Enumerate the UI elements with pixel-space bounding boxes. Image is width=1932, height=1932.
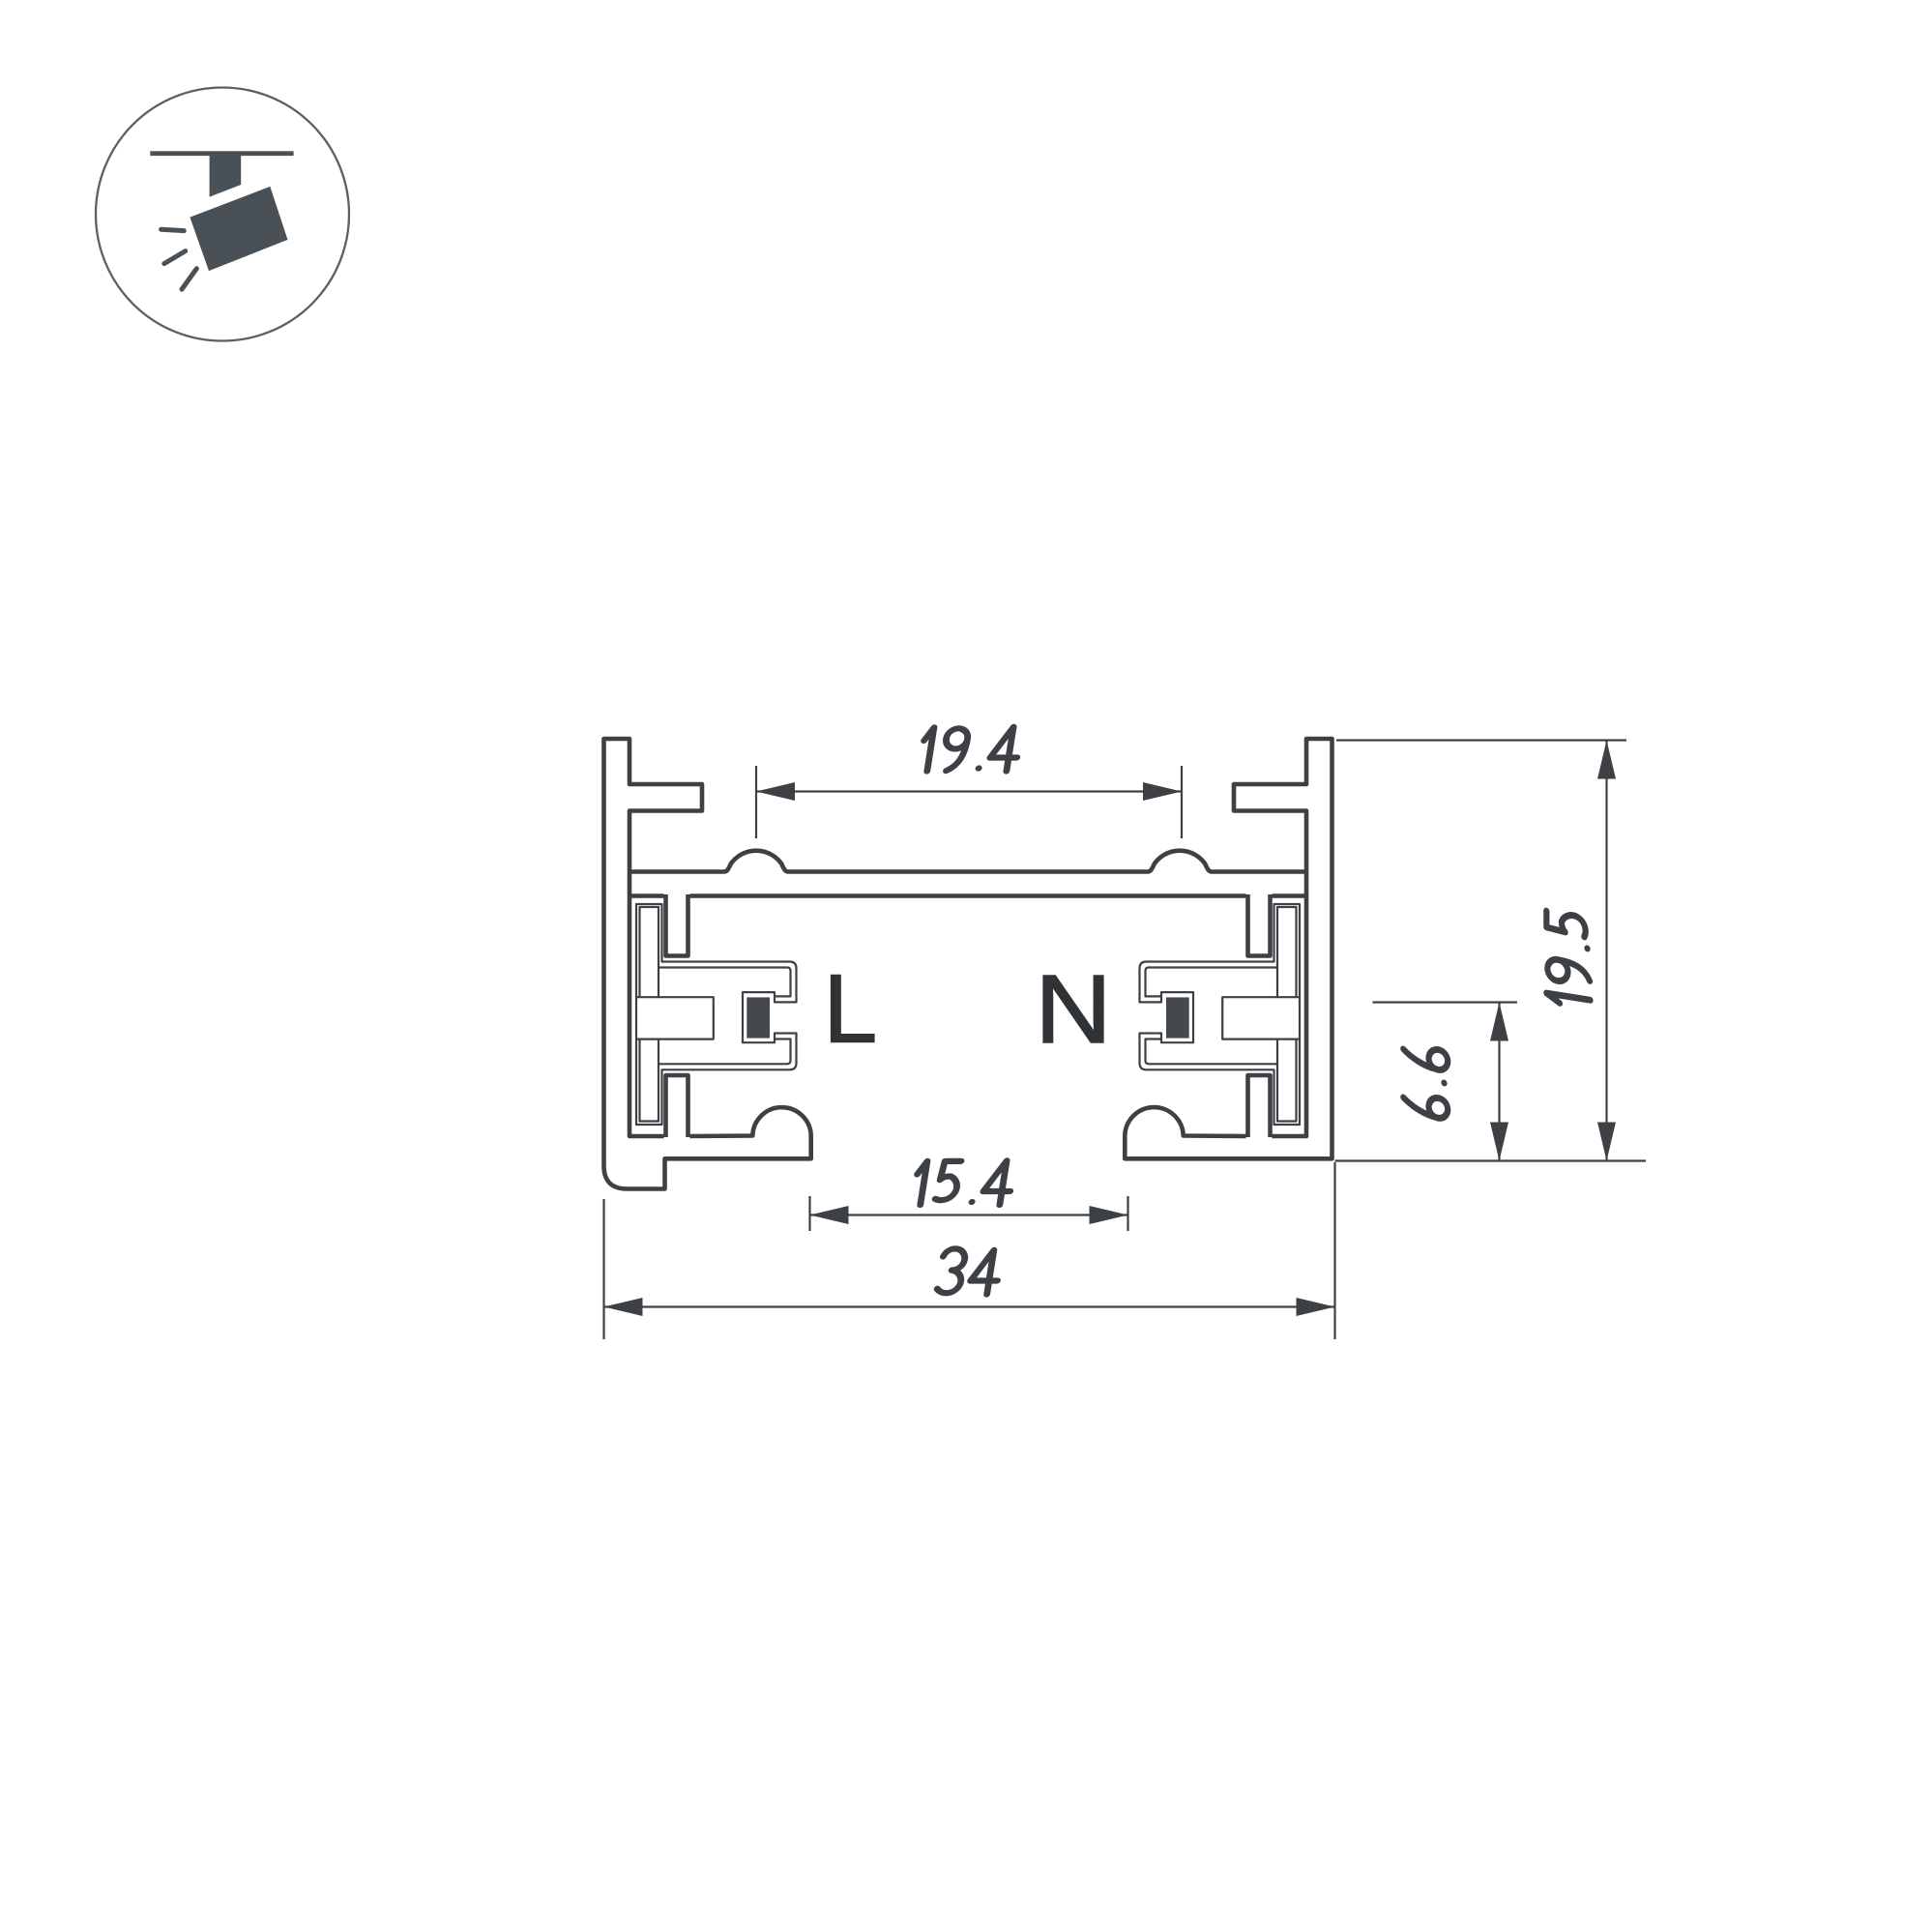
svg-text:L: L [824, 955, 878, 1064]
svg-text:N: N [1035, 956, 1111, 1064]
